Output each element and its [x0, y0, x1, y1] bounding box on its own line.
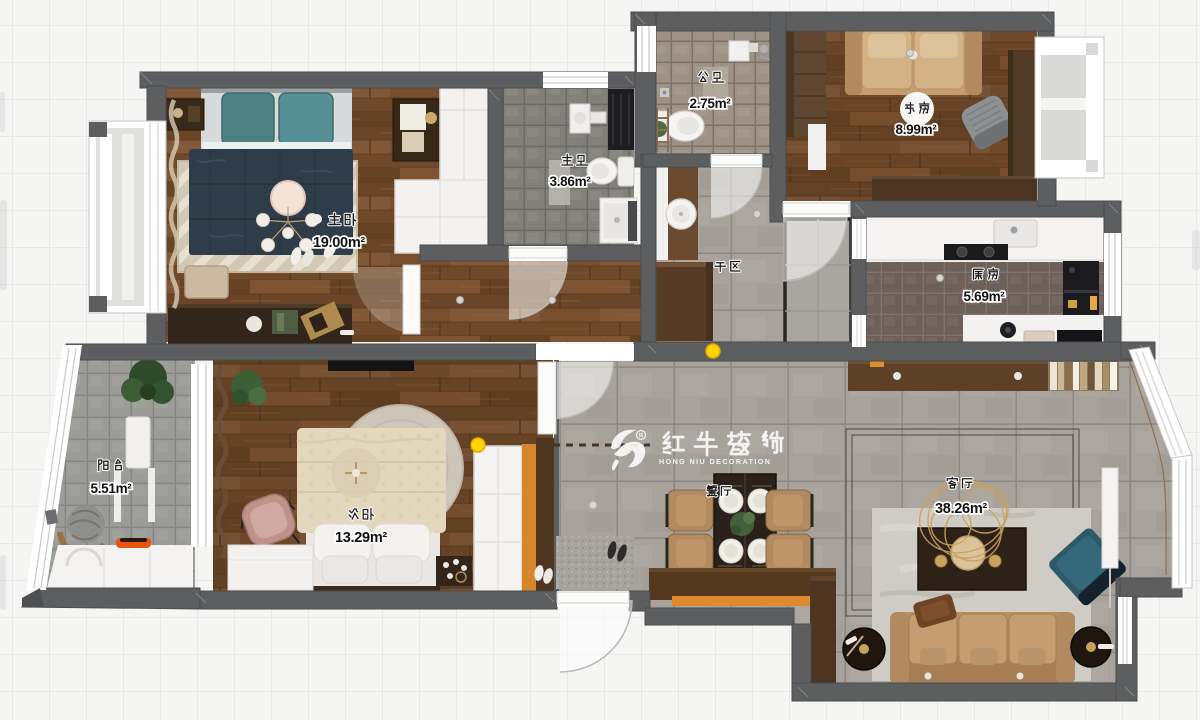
svg-text:5.51m²: 5.51m² — [91, 481, 133, 496]
svg-text:38.26m²: 38.26m² — [935, 501, 987, 517]
svg-text:5.69m²: 5.69m² — [964, 289, 1006, 304]
svg-text:3.86m²: 3.86m² — [550, 174, 592, 189]
svg-text:19.00m²: 19.00m² — [313, 235, 365, 251]
svg-text:2.75m²: 2.75m² — [690, 96, 732, 111]
svg-text:HONG NIU DECORATION: HONG NIU DECORATION — [659, 457, 771, 466]
svg-text:13.29m²: 13.29m² — [335, 530, 387, 546]
svg-text:R: R — [639, 434, 644, 440]
svg-text:8.99m²: 8.99m² — [896, 122, 938, 137]
